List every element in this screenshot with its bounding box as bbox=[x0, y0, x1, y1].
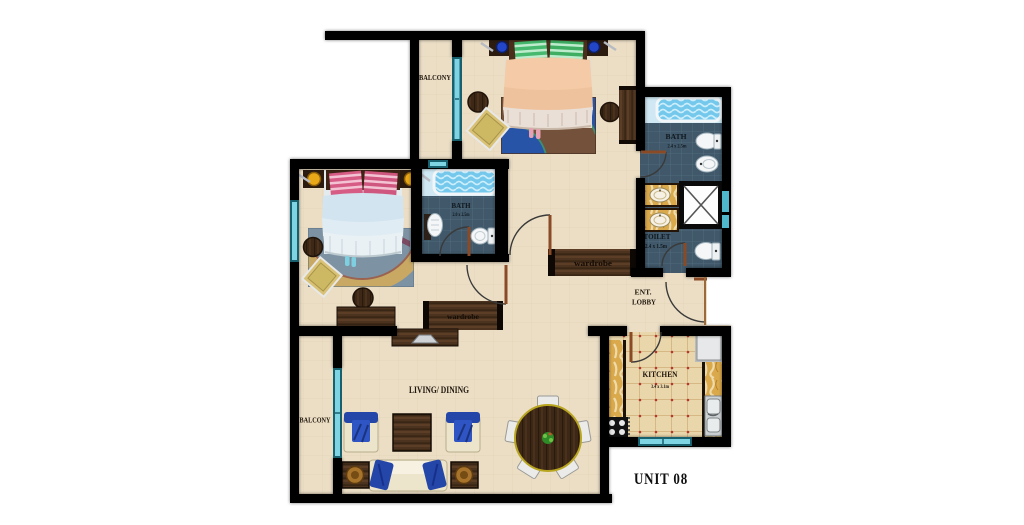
svg-text:2.0 x 2.5m: 2.0 x 2.5m bbox=[453, 212, 470, 218]
svg-text:TOILET: TOILET bbox=[644, 232, 671, 241]
svg-text:ENT.: ENT. bbox=[635, 288, 652, 297]
svg-text:2.4 x 1.5m: 2.4 x 1.5m bbox=[645, 244, 667, 250]
svg-text:LOBBY: LOBBY bbox=[632, 298, 657, 307]
svg-text:2.4 x 2.5m: 2.4 x 2.5m bbox=[668, 144, 687, 150]
svg-text:UNIT 08: UNIT 08 bbox=[634, 471, 688, 488]
svg-text:3.4 x 3.1m: 3.4 x 3.1m bbox=[651, 384, 669, 390]
svg-text:wardrobe: wardrobe bbox=[574, 259, 613, 268]
svg-text:KITCHEN: KITCHEN bbox=[643, 369, 679, 379]
svg-text:BATH: BATH bbox=[666, 132, 687, 141]
svg-text:BALCONY: BALCONY bbox=[300, 416, 331, 425]
svg-text:BALCONY: BALCONY bbox=[419, 73, 451, 82]
svg-text:BATH: BATH bbox=[452, 201, 471, 210]
svg-text:wardrobe: wardrobe bbox=[447, 312, 480, 321]
svg-text:LIVING/ DINING: LIVING/ DINING bbox=[409, 385, 469, 395]
